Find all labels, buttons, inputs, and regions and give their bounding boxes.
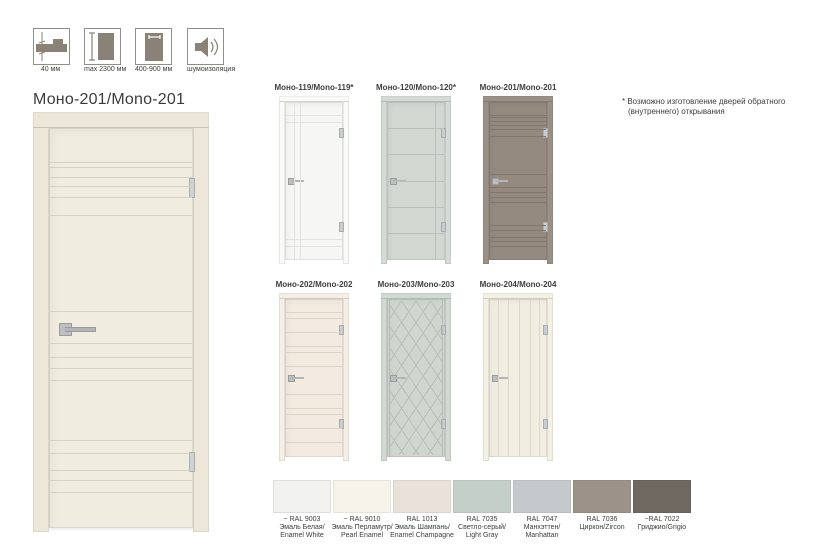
door-groove (490, 187, 546, 188)
swatch-label: ~RAL 7022 Гриджио/Grigio (623, 516, 701, 532)
door-handle-lever (292, 377, 304, 379)
door-frame-right (445, 293, 451, 461)
door-groove (286, 442, 342, 443)
swatch-ral-7047 (513, 480, 571, 513)
door-card-mono-204: Моно-204/Mono-204 (483, 280, 553, 461)
door-hinge-bottom (189, 452, 195, 472)
door-groove (286, 352, 342, 353)
door-card-title: Моно-203/Mono-203 (369, 280, 463, 289)
door-thumbnail (483, 96, 553, 264)
door-frame-right (193, 112, 209, 532)
door-groove (286, 318, 342, 319)
width-label: 400-900 мм (135, 66, 170, 73)
door-groove (490, 121, 546, 122)
door-hinge-bottom (543, 419, 548, 429)
door-groove (50, 368, 192, 369)
door-frame-right (547, 293, 553, 461)
door-groove (490, 197, 546, 198)
door-hinge-top (543, 325, 548, 335)
door-card-title: Моно-204/Mono-204 (471, 280, 565, 289)
door-groove (490, 202, 546, 203)
door-groove (286, 332, 342, 333)
door-groove (50, 311, 192, 312)
door-frame-right (547, 96, 553, 264)
door-thumbnail (381, 96, 451, 264)
door-card-mono-202: Моно-202/Mono-202 (279, 280, 349, 461)
swatch-ral-1013 (393, 480, 451, 513)
door-groove (50, 470, 192, 471)
door-groove (286, 414, 342, 415)
width-icon-glyph (136, 29, 171, 64)
door-groove (286, 394, 342, 395)
door-card-mono-119: Моно-119/Mono-119* (279, 83, 349, 264)
door-card-title: Моно-120/Mono-120* (369, 83, 463, 92)
door-groove (50, 480, 192, 481)
door-card-title: Моно-119/Mono-119* (267, 83, 361, 92)
height-label: max 2300 мм (84, 66, 119, 73)
door-groove (490, 225, 546, 226)
door-card-mono-201: Моно-201/Mono-201 (483, 83, 553, 264)
door-height-icon (84, 28, 121, 65)
door-groove (50, 453, 192, 454)
sound-insulation-icon (187, 28, 224, 65)
door-frame-top (33, 112, 209, 128)
door-leaf (489, 299, 547, 457)
swatch-ral-9003 (273, 480, 331, 513)
door-groove (490, 241, 546, 242)
door-leaf (489, 102, 547, 260)
door-hinge-bottom (441, 222, 446, 232)
door-groove (50, 162, 192, 163)
door-groove (286, 312, 342, 313)
door-leaf (285, 299, 343, 457)
door-groove (286, 428, 342, 429)
door-frame-right (343, 293, 349, 461)
door-groove (50, 343, 192, 344)
door-hinge-top (441, 128, 446, 138)
speaker-icon-glyph (188, 29, 223, 64)
door-card-mono-203: Моно-203/Mono-203 (381, 280, 451, 461)
door-groove (498, 300, 499, 456)
door-thumbnail (381, 293, 451, 461)
door-groove (490, 192, 546, 193)
door-thickness-icon (33, 28, 70, 65)
door-leaf (49, 128, 193, 528)
door-groove (490, 117, 546, 118)
swatch-ral-7036 (573, 480, 631, 513)
door-groove (50, 186, 192, 187)
door-groove (508, 300, 509, 456)
door-leaf (285, 102, 343, 260)
door-hinge-top (339, 128, 344, 138)
footnote-line1: * Возможно изготовление дверей обратного (622, 97, 812, 107)
swatch-ral-7035 (453, 480, 511, 513)
door-groove (435, 103, 436, 259)
door-groove (539, 300, 540, 456)
door-groove (50, 167, 192, 168)
door-groove (490, 136, 546, 137)
door-card-title: Моно-201/Mono-201 (471, 83, 565, 92)
door-groove (50, 177, 192, 178)
door-groove (50, 440, 192, 441)
thickness-label: 40 мм (33, 66, 68, 73)
door-card-mono-120: Моно-120/Mono-120* (381, 83, 451, 264)
door-thumbnail (279, 96, 349, 264)
swatch-ral-7022 (633, 480, 691, 513)
door-groove (490, 174, 546, 175)
door-groove (442, 300, 443, 456)
door-hinge-top (189, 178, 195, 198)
page-title: Моно-201/Mono-201 (33, 91, 185, 109)
main-door-image (33, 112, 209, 532)
thickness-icon-glyph (34, 29, 69, 64)
door-groove (490, 246, 546, 247)
sound-label: шумоизоляция (187, 66, 222, 73)
door-frame-right (343, 96, 349, 264)
door-groove (50, 197, 192, 198)
door-groove (519, 300, 520, 456)
door-hinge-top (339, 325, 344, 335)
footnote: * Возможно изготовление дверей обратного… (622, 97, 812, 116)
footnote-line2: (внутреннего) открывания (622, 107, 812, 117)
door-thumbnail (279, 293, 349, 461)
door-groove (490, 237, 546, 238)
height-icon-glyph (85, 29, 120, 64)
door-groove (286, 366, 342, 367)
door-groove (300, 103, 301, 259)
door-handle-lever (496, 180, 508, 182)
door-groove (294, 103, 295, 259)
door-groove (50, 380, 192, 381)
door-width-icon (135, 28, 172, 65)
door-hinge-bottom (339, 222, 344, 232)
door-handle-lever (65, 327, 96, 332)
door-groove (50, 492, 192, 493)
door-groove (50, 357, 192, 358)
door-groove (490, 230, 546, 231)
door-leaf (387, 299, 445, 457)
door-groove (389, 300, 390, 456)
door-card-title: Моно-202/Mono-202 (267, 280, 361, 289)
door-thumbnail (483, 293, 553, 461)
door-groove (490, 125, 546, 126)
door-groove (490, 129, 546, 130)
door-handle-lever (394, 377, 406, 379)
door-frame-right (445, 96, 451, 264)
door-groove (286, 346, 342, 347)
door-frame-left (33, 112, 49, 532)
door-leaf (387, 102, 445, 260)
door-groove (50, 215, 192, 216)
door-groove (530, 300, 531, 456)
swatch-ral-9010 (333, 480, 391, 513)
door-groove (490, 115, 546, 116)
door-groove (286, 408, 342, 409)
